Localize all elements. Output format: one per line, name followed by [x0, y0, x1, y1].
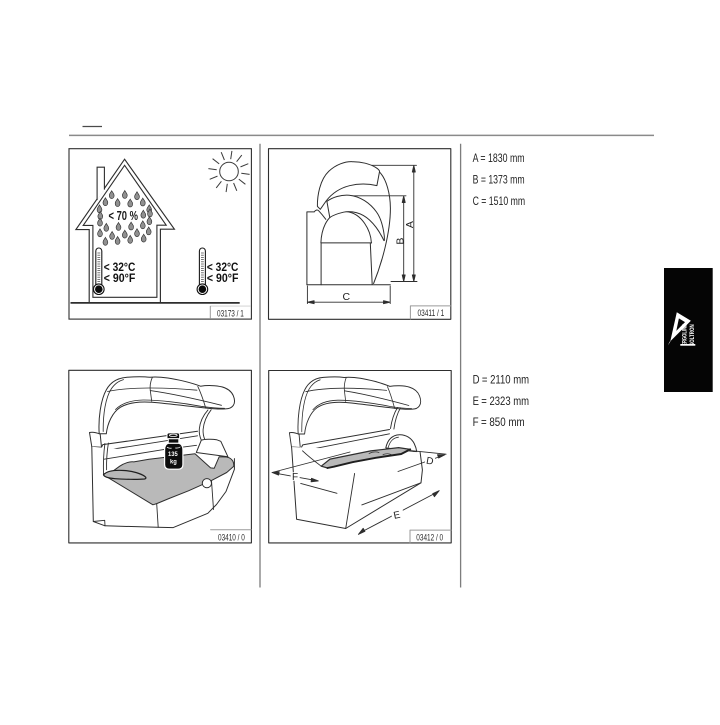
svg-text:B = 1373 mm: B = 1373 mm [473, 173, 525, 186]
svg-text:03410 / 0: 03410 / 0 [218, 532, 245, 543]
svg-text:< 90°F: < 90°F [207, 271, 239, 285]
svg-text:kg: kg [170, 459, 177, 465]
svg-text:D = 2110 mm: D = 2110 mm [473, 374, 529, 387]
svg-text:135: 135 [168, 452, 178, 458]
svg-text:< 70 %: < 70 % [109, 208, 139, 223]
svg-text:B: B [394, 238, 406, 245]
svg-text:A: A [404, 221, 416, 228]
svg-text:SOLTRON: SOLTRON [689, 324, 696, 346]
svg-text:A = 1830 mm: A = 1830 mm [473, 152, 525, 165]
svg-text:< 90°F: < 90°F [104, 271, 136, 285]
svg-text:C = 1510 mm: C = 1510 mm [473, 195, 525, 208]
svg-text:03173 / 1: 03173 / 1 [217, 308, 244, 319]
svg-text:03411 / 1: 03411 / 1 [418, 308, 445, 319]
svg-text:ERGOLINE: ERGOLINE [681, 324, 688, 346]
svg-text:E = 2323 mm: E = 2323 mm [473, 395, 529, 408]
svg-text:03412 / 0: 03412 / 0 [416, 533, 443, 544]
svg-text:F = 850 mm: F = 850 mm [473, 416, 525, 429]
svg-text:F: F [292, 472, 298, 483]
svg-text:C: C [343, 291, 351, 303]
